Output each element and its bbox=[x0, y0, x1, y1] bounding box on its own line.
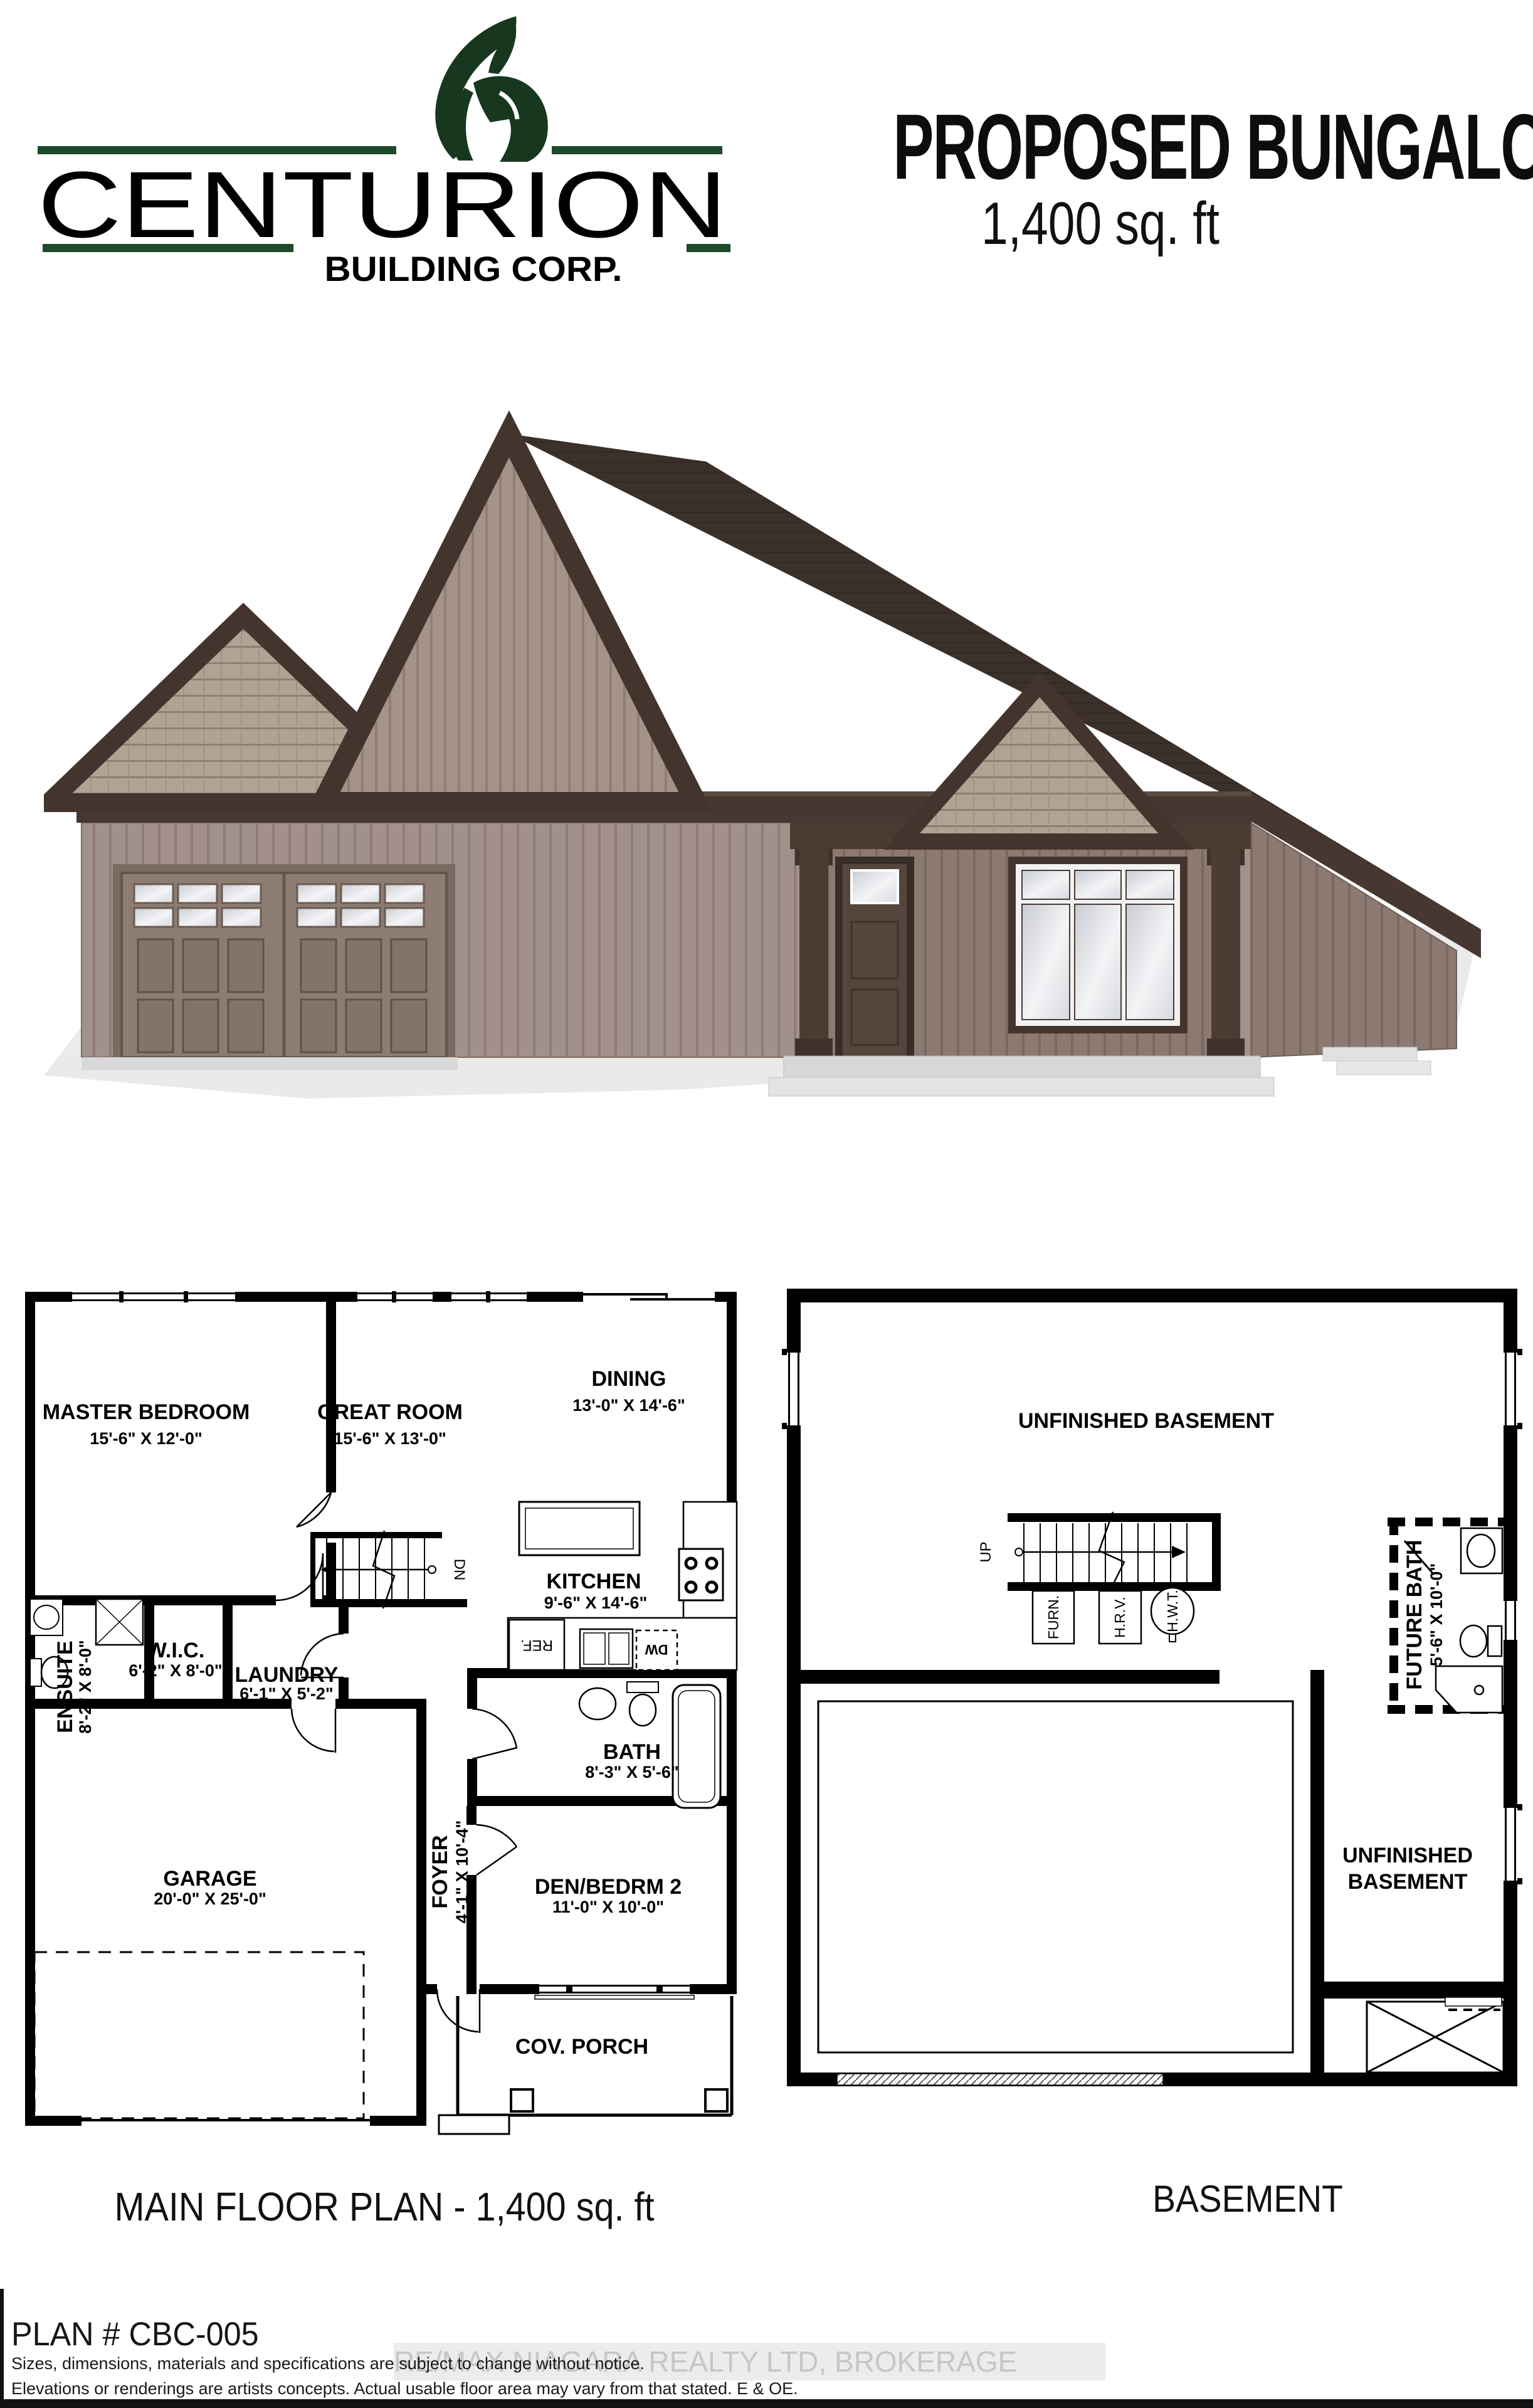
disclaimer-line-2: Elevations or renderings are artists con… bbox=[11, 2379, 798, 2399]
stairs-up-label: UP bbox=[977, 1541, 994, 1562]
flyer-page: CENTURION BUILDING CORP. PROPOSED BUNGAL… bbox=[0, 0, 1533, 2408]
dims-kitchen: 9'-6" X 14'-6" bbox=[544, 1593, 648, 1612]
footer-left-border bbox=[0, 2289, 4, 2408]
front-window bbox=[1008, 857, 1188, 1033]
basement-caption: BASEMENT bbox=[1046, 2177, 1450, 2221]
hwt-label: H.W.T. bbox=[1164, 1590, 1181, 1632]
stairs-basement: UP bbox=[977, 1512, 1221, 1592]
garage-door-opening bbox=[82, 2119, 370, 2121]
garage-door-rough-opening bbox=[837, 2074, 1163, 2085]
logo-subrule-left bbox=[43, 244, 293, 252]
window-master bbox=[72, 1291, 235, 1303]
label-bath: BATH bbox=[603, 1740, 661, 1764]
label-laundry: LAUNDRY bbox=[235, 1663, 339, 1687]
dims-master: 15'-6" X 12'-0" bbox=[90, 1429, 203, 1448]
label-dining: DINING bbox=[592, 1367, 666, 1391]
label-ensuite: ENSUITE bbox=[53, 1640, 77, 1733]
dims-ensuite: 8'-2" X 8'-0" bbox=[76, 1640, 95, 1734]
furnace-label: FURN. bbox=[1045, 1595, 1062, 1639]
garage-door bbox=[113, 864, 455, 1057]
porch-gable bbox=[902, 685, 1176, 842]
dims-garage: 20'-0" X 25'-0" bbox=[154, 1889, 266, 1908]
hrv-label: H.R.V. bbox=[1112, 1597, 1128, 1638]
dims-wic: 6'-2" X 8'-0" bbox=[129, 1661, 223, 1680]
dims-future-bath: 5'-6" X 10'-0" bbox=[1427, 1563, 1446, 1667]
dims-bath: 8'-3" X 5'-6" bbox=[585, 1763, 679, 1782]
dims-dining: 13'-0" X 14'-6" bbox=[572, 1396, 685, 1415]
logo-brand-text: CENTURION bbox=[38, 152, 727, 257]
dims-laundry: 6'-1" X 5'-2" bbox=[240, 1684, 334, 1703]
stairs-dn-label: DN bbox=[451, 1559, 468, 1581]
page-title: PROPOSED BUNGALOW bbox=[893, 94, 1341, 201]
dims-foyer: 4'-1" X 10'-4" bbox=[453, 1820, 471, 1924]
covered-porch bbox=[439, 1996, 732, 2134]
label-master: MASTER BEDROOM bbox=[43, 1400, 250, 1424]
house-rendering bbox=[44, 401, 1499, 1141]
page-subtitle: 1,400 sq. ft bbox=[842, 189, 1359, 258]
label-unfinished-top: UNFINISHED BASEMENT bbox=[1018, 1409, 1274, 1433]
dishwasher-label: DW bbox=[645, 1642, 668, 1657]
dims-great: 15'-6" X 13'-0" bbox=[334, 1429, 446, 1448]
label-unfinished-bottom-1: UNFINISHED bbox=[1342, 1844, 1473, 1867]
garage-foundation-outline bbox=[818, 1701, 1293, 2052]
label-future-bath: FUTURE BATH bbox=[1403, 1539, 1426, 1689]
spartan-helmet-icon bbox=[435, 16, 548, 162]
centurion-logo: CENTURION BUILDING CORP. bbox=[34, 13, 730, 282]
fridge-label: REF. bbox=[520, 1637, 553, 1654]
main-floor-plan: DN REF. DW bbox=[16, 1282, 749, 2160]
window-great-2 bbox=[451, 1291, 527, 1303]
bottom-border-bar bbox=[0, 2399, 1533, 2408]
dims-den: 11'-0" X 10'-0" bbox=[552, 1898, 664, 1916]
plan-number: PLAN # CBC-005 bbox=[11, 2315, 259, 2353]
front-door bbox=[835, 857, 914, 1057]
label-foyer: FOYER bbox=[428, 1835, 452, 1908]
label-garage: GARAGE bbox=[163, 1867, 256, 1891]
patio-door-dining bbox=[583, 1291, 715, 1303]
label-porch: COV. PORCH bbox=[515, 2035, 648, 2059]
label-kitchen: KITCHEN bbox=[546, 1570, 641, 1593]
disclaimer-line-1: Sizes, dimensions, materials and specifi… bbox=[11, 2354, 645, 2374]
label-unfinished-bottom-2: BASEMENT bbox=[1348, 1870, 1468, 1894]
logo-tagline-text: BUILDING CORP. bbox=[325, 249, 623, 282]
window-great-1 bbox=[357, 1291, 433, 1303]
label-wic: W.I.C. bbox=[147, 1639, 205, 1662]
garage-dashed-area bbox=[34, 1952, 364, 2118]
label-great: GREAT ROOM bbox=[317, 1400, 463, 1424]
basement-plan: UP FURN. H.R.V. H.W.T. bbox=[781, 1282, 1524, 2098]
porch-foundation bbox=[1367, 1997, 1504, 2073]
label-den: DEN/BEDRM 2 bbox=[535, 1875, 682, 1899]
main-floor-caption: MAIN FLOOR PLAN - 1,400 sq. ft bbox=[74, 2184, 695, 2230]
future-bath: FUTURE BATH 5'-6" X 10'-0" bbox=[1388, 1518, 1505, 1714]
logo-subrule-right bbox=[687, 244, 730, 252]
window-den bbox=[535, 1983, 694, 1999]
